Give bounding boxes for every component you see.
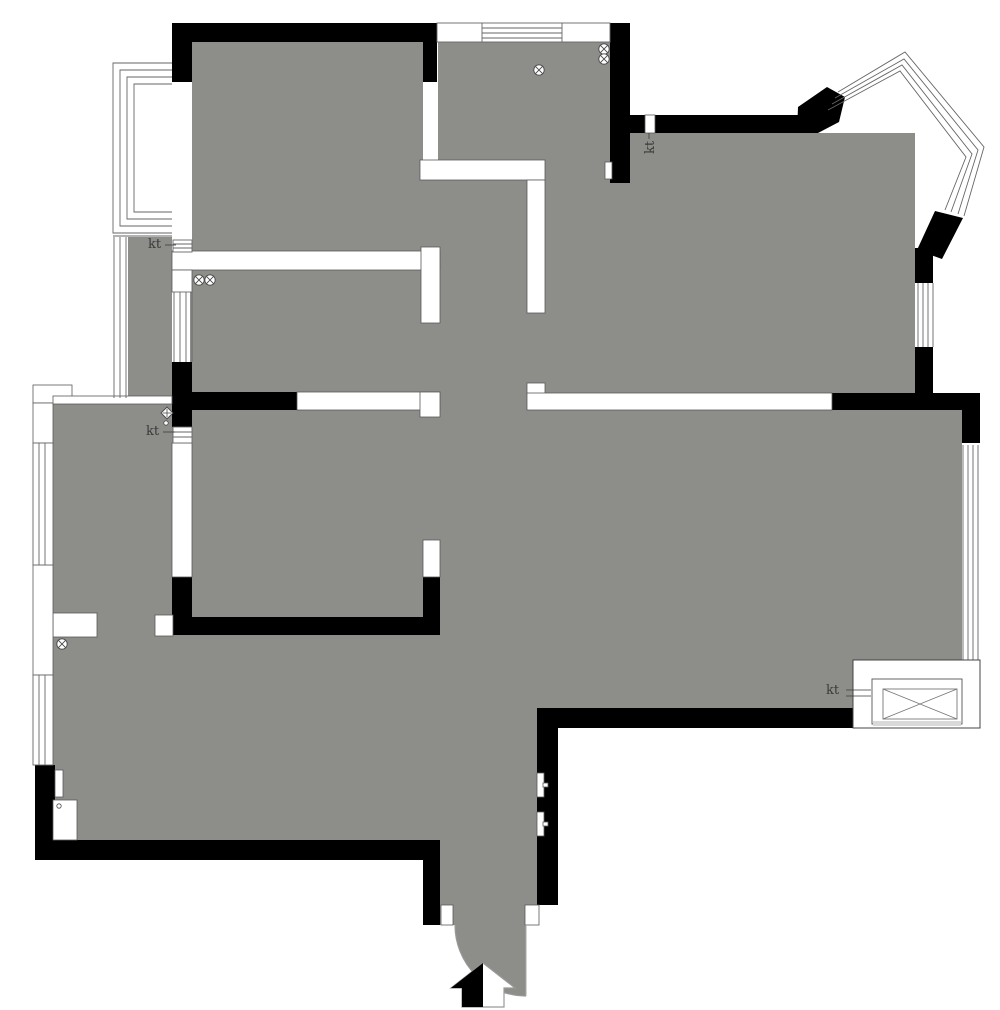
entry-arrow-dark-half <box>451 963 483 1007</box>
partition-hall-east <box>527 180 545 313</box>
wall-master-north <box>630 115 800 133</box>
label-kt-living-west: kt <box>146 425 159 439</box>
partition-room2-south <box>297 392 440 410</box>
wall-bay-north-jamb <box>797 87 845 133</box>
partition-bedroom-stub <box>53 613 97 637</box>
label-kt-master-vent: kt <box>644 141 658 154</box>
partition-room2-north <box>172 251 440 270</box>
shaft-bottom-strip <box>873 721 961 726</box>
kt-window-mid <box>173 427 192 443</box>
partition-hall-stub <box>420 392 440 417</box>
entry-door-frame-left <box>441 905 453 925</box>
room-mid-left-floor <box>190 262 545 398</box>
ceiling-light-icon <box>57 639 67 649</box>
wall-top-mid-column <box>423 23 437 82</box>
balcony-strip-floor <box>128 237 172 398</box>
wall-east-column <box>962 410 980 443</box>
shaft-inner <box>872 679 962 724</box>
kitchen-wall-slit <box>605 162 612 179</box>
wall-top <box>172 23 437 42</box>
wall-room2-south <box>172 392 297 410</box>
entry-wall-tick-2 <box>543 822 548 826</box>
partition-west-upper <box>172 270 192 292</box>
ceiling-light-icon <box>599 44 609 54</box>
kitchen-window <box>437 23 610 42</box>
master-vent-slit <box>645 115 655 133</box>
label-kt-balcony-north: kt <box>148 238 161 252</box>
wall-top-left-column <box>172 23 192 82</box>
small-dot-icon <box>164 421 168 425</box>
room-top-right-floor <box>630 133 915 393</box>
wall-bedroom-nw-column <box>172 577 192 635</box>
balcony-frame <box>113 63 172 233</box>
ceiling-light-icon <box>194 275 204 285</box>
living-balcony-sill <box>53 396 172 404</box>
wall-entry-west <box>423 840 440 925</box>
wall-dining-south <box>537 708 873 728</box>
wall-kitchen-east <box>610 23 630 183</box>
entry-door-frame-right <box>525 905 539 925</box>
entry-wall-tick-1 <box>543 783 548 787</box>
wall-bedroom-ne-column <box>423 577 440 635</box>
utility-shaft <box>853 660 980 728</box>
hall-sliver-floor <box>420 180 440 248</box>
ceiling-light-icon <box>534 65 544 75</box>
wall-bay-east-jamb <box>917 211 963 259</box>
kt-window-north <box>173 240 192 252</box>
wall-master-south-east <box>832 393 980 410</box>
wall-east-mid <box>915 347 933 393</box>
wall-bedroom-north <box>192 617 440 635</box>
wall-south <box>37 840 440 860</box>
living-west-window-upper <box>33 443 53 565</box>
entry-corridor-floor <box>440 840 537 925</box>
ceiling-light-icon <box>205 275 215 285</box>
partition-kitchen-south <box>420 160 545 180</box>
floor-plan: kt kt kt kt <box>0 0 1000 1010</box>
room-top-left-floor <box>192 42 423 252</box>
bedroom-door-frame-top <box>423 540 440 577</box>
partition-master-south <box>527 393 832 410</box>
floor-plan-drawing <box>0 0 1000 1010</box>
bedroom-door-leaf <box>155 615 173 636</box>
partition-master-step <box>527 383 545 394</box>
west-pillar-mid <box>33 565 53 675</box>
west-pillar-top-v <box>33 403 53 443</box>
west-wall-slit <box>55 770 63 797</box>
label-kt-shaft: kt <box>826 684 839 698</box>
small-dot-icon <box>57 804 61 808</box>
living-west-window-lower <box>33 675 53 765</box>
partition-room2-east-stub <box>421 247 440 323</box>
ceiling-light-icon <box>599 54 609 64</box>
partition-west-lower <box>172 443 192 577</box>
